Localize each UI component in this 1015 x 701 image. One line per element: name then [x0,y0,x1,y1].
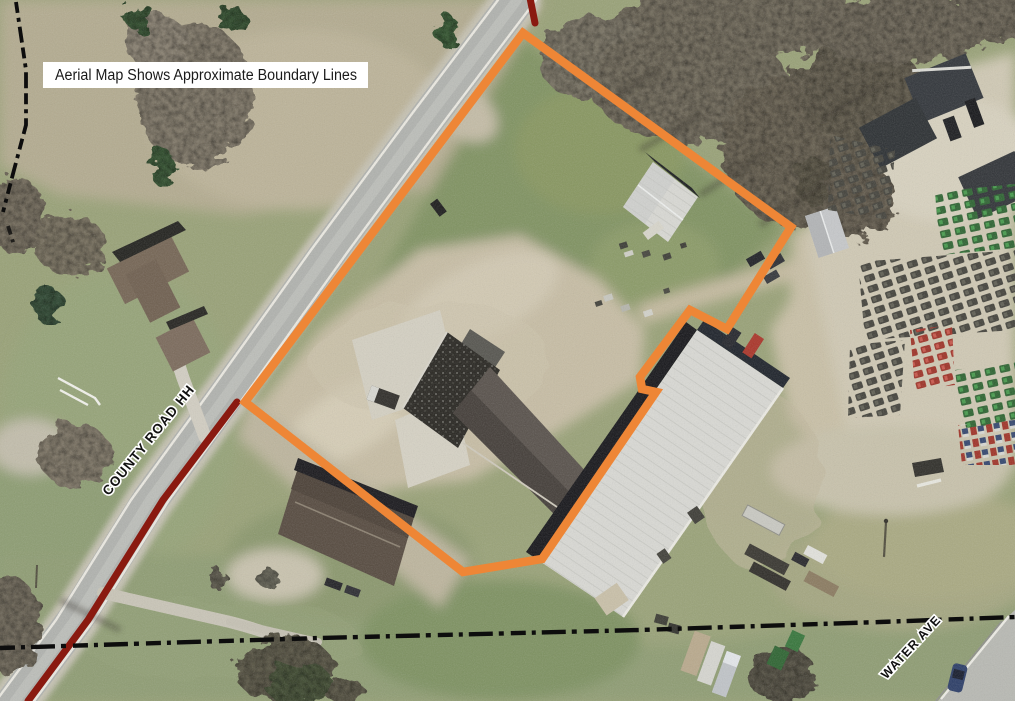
map-annotation-text: Aerial Map Shows Approximate Boundary Li… [55,67,357,84]
aerial-map-image: COUNTY ROAD HH WATER AVE Aerial Map Show… [0,0,1015,701]
photo-grain-overlay [0,0,1015,701]
aerial-map-screenshot: COUNTY ROAD HH WATER AVE Aerial Map Show… [0,0,1015,701]
map-annotation: Aerial Map Shows Approximate Boundary Li… [43,62,368,88]
